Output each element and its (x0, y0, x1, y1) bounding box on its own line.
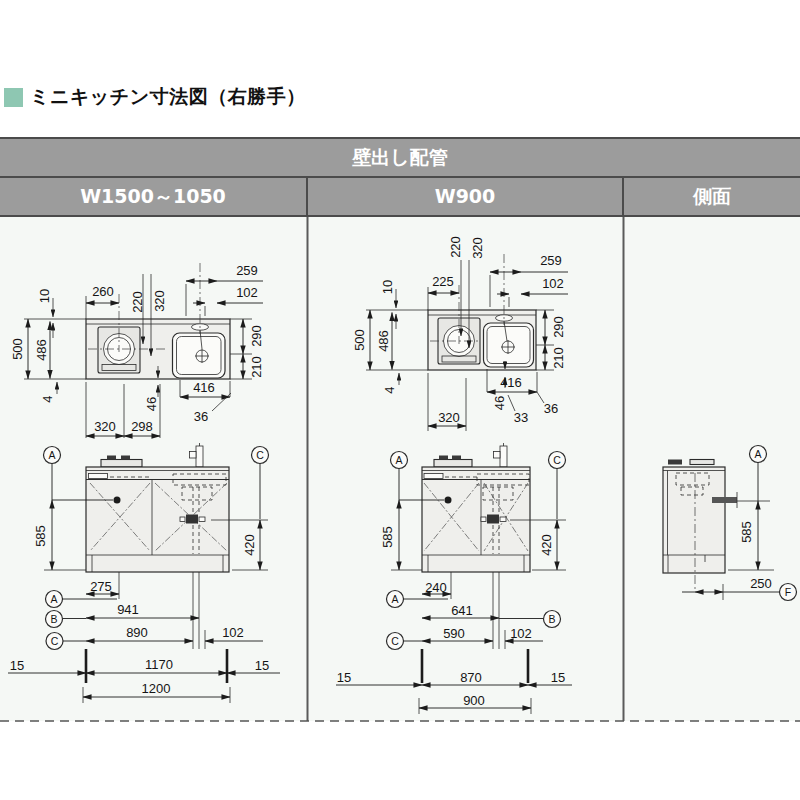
dim-585: 585 (380, 526, 395, 548)
dim-275: 275 (90, 579, 112, 594)
w1500-elevation-view: A C 585 420 275 A 941 B 890 102 C 15 117… (8, 443, 280, 703)
ref-A-top: A (395, 454, 402, 466)
dim-10: 10 (380, 280, 395, 294)
dim-290: 290 (249, 325, 264, 347)
dim-225: 225 (432, 274, 454, 289)
dim-320-bottom: 320 (438, 410, 460, 425)
dim-585: 585 (739, 521, 754, 543)
page: ミニキッチン寸法図（右勝手） 壁出し配管 W1500～1050 W900 側面 (0, 0, 800, 800)
dim-900: 900 (463, 693, 485, 708)
dim-102b: 102 (510, 626, 532, 641)
dim-10: 10 (37, 289, 52, 303)
side-view: A 585 250 F (663, 446, 797, 601)
dim-15-right: 15 (255, 658, 269, 673)
dim-15-left: 15 (337, 670, 351, 685)
dim-259: 259 (236, 263, 258, 278)
ref-C-top: C (553, 454, 561, 466)
dim-420: 420 (539, 534, 554, 556)
w900-elevation-view: A C 585 420 240 A 641 B 590 102 C 15 870… (336, 443, 572, 714)
dim-46: 46 (492, 396, 507, 410)
w1500-plan-view: 260 220 320 259 102 10 500 486 4 290 210… (10, 263, 264, 439)
dim-290: 290 (551, 316, 566, 338)
dim-36: 36 (544, 401, 558, 416)
dim-260: 260 (92, 284, 114, 299)
dim-486: 486 (34, 339, 49, 361)
dim-1200: 1200 (142, 681, 171, 696)
dim-416: 416 (193, 380, 215, 395)
w900-plan-view: 225 220 320 259 102 10 500 486 4 290 210… (352, 236, 569, 431)
dim-416: 416 (500, 375, 522, 390)
dim-33: 33 (514, 410, 528, 425)
dim-870: 870 (460, 670, 482, 685)
ref-A: A (50, 593, 57, 605)
ref-C-top: C (256, 449, 264, 461)
dim-220: 220 (130, 291, 145, 313)
ref-C: C (391, 635, 399, 647)
dim-210: 210 (249, 356, 264, 378)
dim-102b: 102 (222, 625, 244, 640)
ref-A-top: A (48, 449, 55, 461)
ref-A: A (391, 593, 398, 605)
dim-320-bottom: 320 (94, 419, 116, 434)
dim-420: 420 (242, 534, 257, 556)
dim-102: 102 (542, 276, 564, 291)
dim-15-left: 15 (10, 658, 24, 673)
dim-36: 36 (194, 409, 208, 424)
dim-500: 500 (352, 329, 367, 351)
ref-A: A (754, 448, 761, 460)
dim-486: 486 (376, 330, 391, 352)
dim-250: 250 (750, 576, 772, 591)
dim-320-top: 320 (152, 290, 167, 312)
dim-585: 585 (33, 525, 48, 547)
dim-46: 46 (144, 397, 159, 411)
dim-320-top: 320 (470, 237, 485, 259)
dim-210: 210 (551, 347, 566, 369)
dim-890: 890 (126, 625, 148, 640)
dim-220: 220 (448, 236, 463, 258)
dim-102: 102 (236, 285, 258, 300)
dim-15-right: 15 (551, 670, 565, 685)
ref-B: B (548, 613, 555, 625)
ref-C: C (51, 635, 59, 647)
dim-590: 590 (443, 626, 465, 641)
dim-500: 500 (10, 338, 25, 360)
dim-641: 641 (451, 603, 473, 618)
dim-4: 4 (40, 395, 55, 402)
dim-298: 298 (131, 419, 153, 434)
dim-4: 4 (382, 386, 397, 393)
dim-259: 259 (540, 253, 562, 268)
dim-240: 240 (425, 580, 447, 595)
dim-941: 941 (117, 602, 139, 617)
ref-F: F (785, 586, 791, 598)
ref-B: B (50, 613, 57, 625)
dimension-drawings: 260 220 320 259 102 10 500 486 4 290 210… (0, 0, 800, 800)
dim-1170: 1170 (145, 657, 173, 672)
